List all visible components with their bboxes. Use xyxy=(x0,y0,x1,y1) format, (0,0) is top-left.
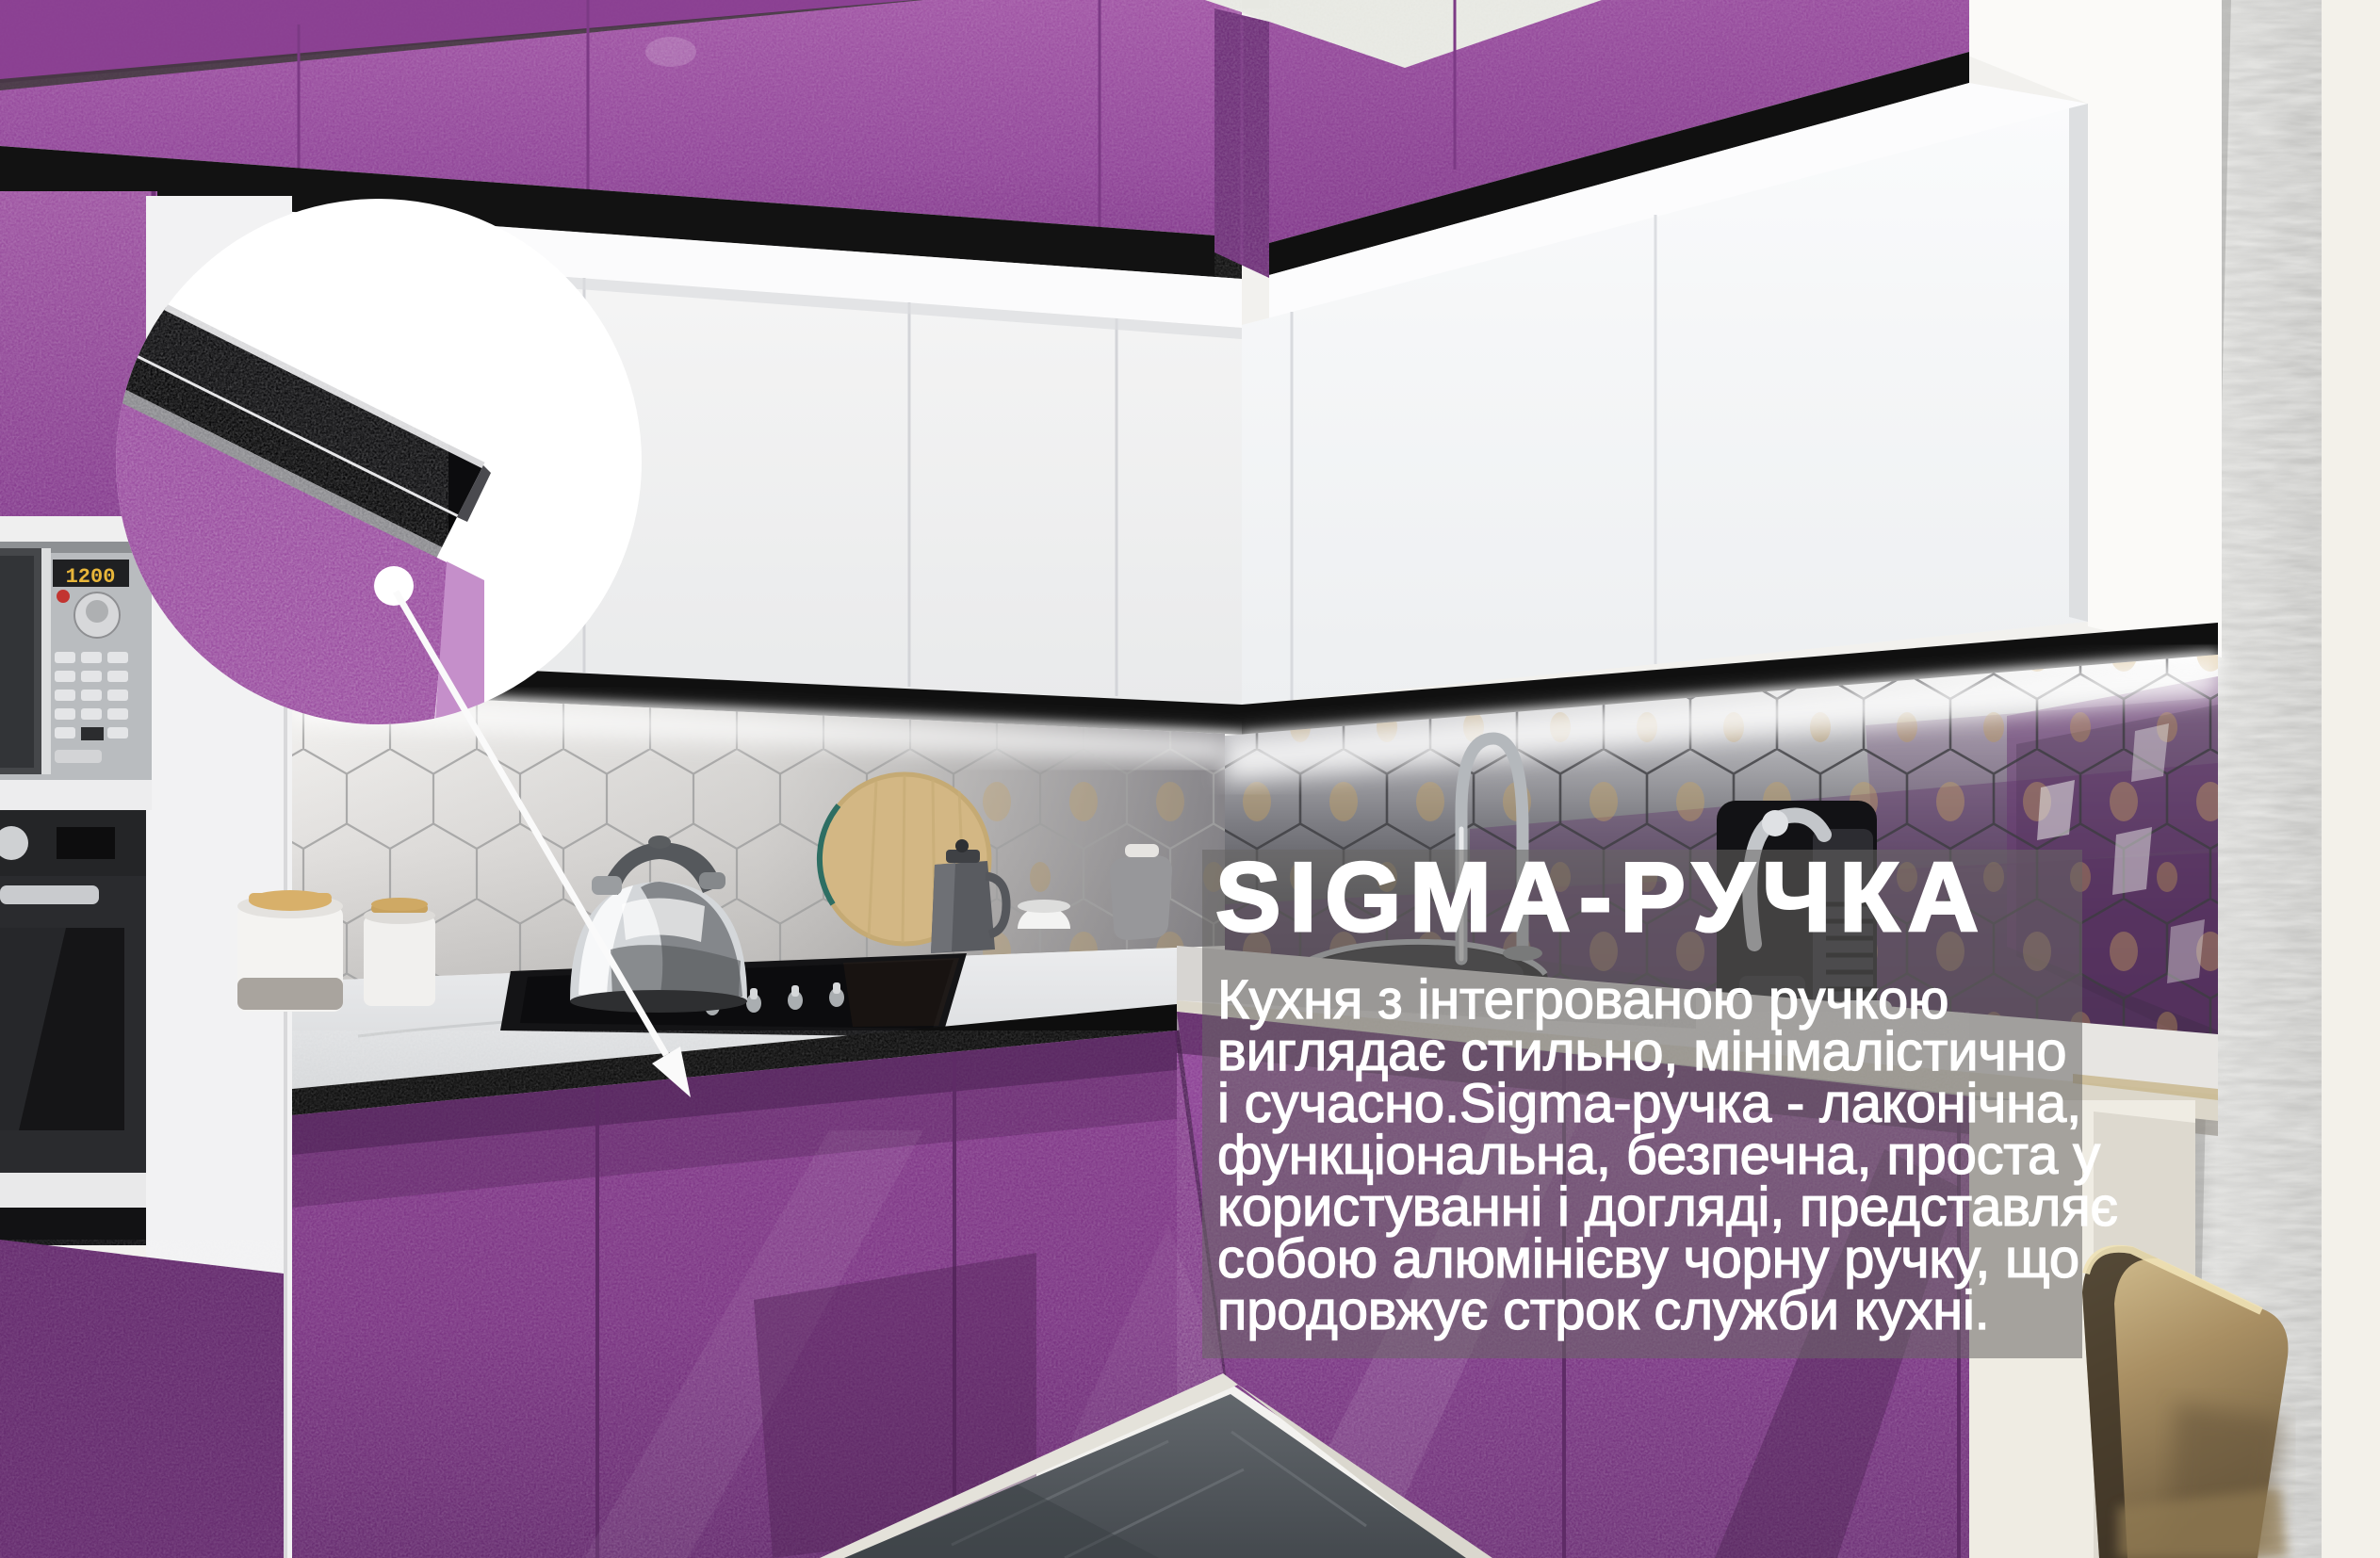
svg-text:1200: 1200 xyxy=(66,565,116,589)
